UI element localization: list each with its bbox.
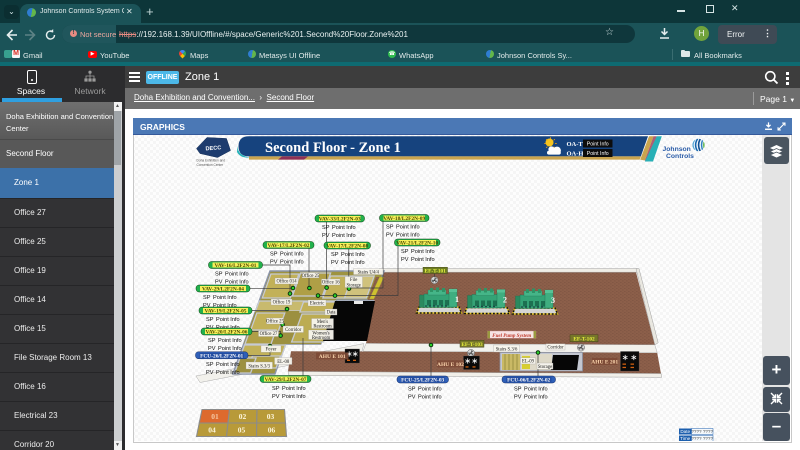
svg-text:Point Info: Point Info: [332, 225, 356, 231]
svg-text:EF-T-102: EF-T-102: [573, 336, 595, 342]
svg-text:PV: PV: [514, 395, 522, 401]
svg-text:???? ????: ???? ????: [691, 436, 713, 441]
svg-text:Point Info: Point Info: [524, 387, 548, 393]
svg-text:EL-09: EL-09: [522, 360, 535, 365]
svg-text:Corridor: Corridor: [547, 346, 564, 351]
svg-text:PV: PV: [206, 370, 214, 376]
svg-text:VAV-21/L2F2N-10: VAV-21/L2F2N-10: [396, 241, 438, 247]
svg-text:SP: SP: [215, 272, 223, 278]
svg-text:Stairs U4/4: Stairs U4/4: [358, 270, 380, 275]
svg-text:Point Info: Point Info: [213, 295, 237, 301]
svg-text:VAV-17/L2F2N-08: VAV-17/L2F2N-08: [326, 244, 368, 250]
svg-text:SP: SP: [331, 252, 339, 258]
svg-text:DECC: DECC: [205, 145, 221, 152]
svg-text:Point Info: Point Info: [282, 394, 306, 400]
svg-text:VAV-17/L2F2N-02: VAV-17/L2F2N-02: [268, 243, 310, 249]
svg-text:Storage: Storage: [538, 365, 552, 370]
svg-text:VAV-20/L2F2N-06: VAV-20/L2F2N-06: [206, 330, 248, 336]
svg-text:Office 19: Office 19: [273, 301, 291, 306]
svg-text:FCU-25/L2F2N-03: FCU-25/L2F2N-03: [401, 378, 444, 384]
svg-text:Date: Date: [680, 429, 690, 434]
svg-text:2: 2: [503, 296, 507, 305]
svg-text:VAV-18/L2F2N-09: VAV-18/L2F2N-09: [383, 216, 425, 222]
svg-text:SP: SP: [272, 386, 280, 392]
svg-text:EL-08: EL-08: [277, 360, 290, 365]
svg-text:Fuel Pump System: Fuel Pump System: [492, 334, 531, 339]
svg-text:Point Info: Point Info: [411, 257, 435, 263]
svg-text:Office 25: Office 25: [302, 274, 320, 279]
svg-text:VAV-33/L2F2N-03: VAV-33/L2F2N-03: [319, 217, 361, 223]
svg-text:06: 06: [268, 426, 276, 435]
svg-text:Storage: Storage: [347, 283, 361, 288]
svg-text:PV: PV: [208, 346, 216, 352]
svg-text:Restroom: Restroom: [313, 325, 332, 330]
svg-text:VAV-16/L2F2N-01: VAV-16/L2F2N-01: [215, 263, 257, 269]
svg-text:Point Info: Point Info: [524, 395, 548, 401]
svg-text:Point Info: Point Info: [225, 272, 249, 278]
svg-text:Doha Exhibition and: Doha Exhibition and: [197, 159, 226, 163]
svg-text:Office 25: Office 25: [266, 320, 284, 325]
svg-text:SP: SP: [514, 387, 522, 393]
svg-text:PV: PV: [215, 280, 223, 286]
svg-text:Time: Time: [680, 436, 690, 441]
svg-text:Point Info: Point Info: [341, 260, 365, 266]
svg-text:Point Info: Point Info: [396, 233, 420, 239]
svg-text:Point Info: Point Info: [218, 338, 242, 344]
svg-text:AHU E 101: AHU E 101: [319, 354, 346, 360]
svg-text:AHU E 102: AHU E 102: [437, 362, 464, 368]
svg-text:PV: PV: [322, 233, 330, 239]
svg-text:FCU-06/L2F2N-02: FCU-06/L2F2N-02: [507, 378, 550, 384]
svg-text:OA-H: OA-H: [567, 151, 584, 158]
svg-text:SP: SP: [270, 252, 278, 258]
svg-text:Point Info: Point Info: [418, 395, 442, 401]
svg-text:Office 014: Office 014: [276, 280, 297, 285]
svg-text:Office 16: Office 16: [322, 281, 340, 286]
svg-text:Point Info: Point Info: [411, 249, 435, 255]
svg-text:Controls: Controls: [666, 153, 694, 160]
svg-text:Point Info: Point Info: [218, 346, 242, 352]
svg-text:02: 02: [239, 412, 247, 421]
svg-text:VAV-29/L2F2N-04: VAV-29/L2F2N-04: [202, 287, 244, 293]
svg-text:Office 27: Office 27: [260, 332, 278, 337]
svg-text:EF-T-101: EF-T-101: [425, 268, 447, 274]
svg-text:Electric: Electric: [310, 302, 325, 307]
svg-text:05: 05: [238, 426, 246, 435]
svg-text:Point Info: Point Info: [216, 317, 240, 323]
svg-text:Restroom: Restroom: [312, 336, 331, 341]
svg-text:01: 01: [211, 412, 219, 421]
svg-text:Foyer: Foyer: [266, 348, 277, 353]
svg-text:PV: PV: [272, 394, 280, 400]
svg-text:SP: SP: [322, 225, 330, 231]
svg-text:FCU-26/L2F2N-01: FCU-26/L2F2N-01: [200, 354, 243, 360]
svg-text:Point Info: Point Info: [282, 386, 306, 392]
svg-text:SP: SP: [206, 317, 214, 323]
svg-text:SP: SP: [208, 338, 216, 344]
svg-text:VAV-29/L2F2N-07: VAV-29/L2F2N-07: [265, 377, 307, 383]
svg-text:Johnson: Johnson: [663, 146, 691, 153]
svg-text:PV: PV: [386, 233, 394, 239]
svg-text:SP: SP: [401, 249, 409, 255]
svg-text:Point Info: Point Info: [280, 252, 304, 258]
svg-text:Point Info: Point Info: [332, 233, 356, 239]
svg-text:SP: SP: [386, 225, 394, 231]
svg-text:SP: SP: [203, 295, 211, 301]
svg-text:PV: PV: [408, 395, 416, 401]
svg-text:Point Info: Point Info: [587, 142, 609, 148]
svg-text:SP: SP: [206, 362, 214, 368]
svg-text:Point Info: Point Info: [225, 280, 249, 286]
svg-text:Point Info: Point Info: [216, 362, 240, 368]
svg-text:03: 03: [267, 412, 275, 421]
svg-text:Point Info: Point Info: [418, 387, 442, 393]
svg-text:Stairs S.3/6: Stairs S.3/6: [496, 347, 518, 352]
svg-text:VAV-19/L2F2N-05: VAV-19/L2F2N-05: [205, 309, 247, 315]
svg-text:Second Floor - Zone 1: Second Floor - Zone 1: [265, 140, 401, 156]
svg-text:AHU E 201: AHU E 201: [591, 360, 618, 366]
svg-text:3: 3: [551, 296, 555, 305]
svg-text:OA-T: OA-T: [567, 141, 584, 148]
svg-text:SP: SP: [408, 387, 416, 393]
svg-text:PV: PV: [331, 260, 339, 266]
svg-text:04: 04: [208, 426, 216, 435]
svg-text:PV: PV: [401, 257, 409, 263]
svg-text:Corridor: Corridor: [285, 328, 302, 333]
svg-text:Point Info: Point Info: [216, 370, 240, 376]
svg-text:PV: PV: [270, 260, 278, 266]
svg-text:Convention Center: Convention Center: [197, 163, 225, 167]
svg-text:EF-T-103: EF-T-103: [461, 342, 483, 348]
svg-text:???? ????: ???? ????: [691, 429, 713, 434]
svg-text:Point Info: Point Info: [396, 225, 420, 231]
svg-text:1: 1: [455, 295, 459, 304]
svg-text:Point Info: Point Info: [280, 260, 304, 266]
svg-text:Point Info: Point Info: [341, 252, 365, 258]
svg-text:Point Info: Point Info: [587, 151, 609, 157]
svg-text:Stairs S.3/3: Stairs S.3/3: [248, 364, 270, 369]
svg-text:Data: Data: [327, 311, 337, 316]
